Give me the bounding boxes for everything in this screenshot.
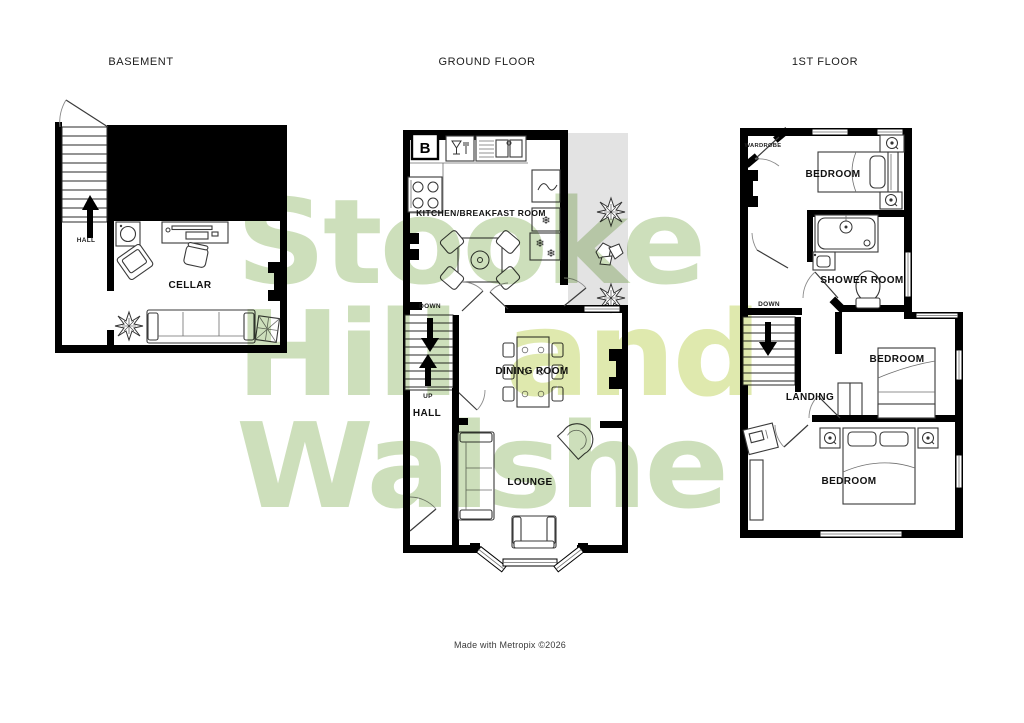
tub-chair-icon xyxy=(557,417,599,459)
dining-room-label: DINING ROOM xyxy=(495,366,568,377)
svg-text:❄: ❄ xyxy=(535,237,544,250)
boiler-label: B xyxy=(420,140,431,157)
washing-machine-icon xyxy=(116,222,140,246)
wall xyxy=(107,330,114,347)
basement-floorplan: HALL CELLAR xyxy=(55,95,290,360)
kitchen-dining-doors xyxy=(462,282,508,311)
boiler-unit: B xyxy=(412,134,438,159)
wall xyxy=(107,221,114,291)
wall xyxy=(505,305,560,313)
void-area xyxy=(107,125,287,221)
bedroom1-door-arc xyxy=(752,233,788,268)
floorplan-canvas: BASEMENT GROUND FLOOR 1ST FLOOR xyxy=(0,0,1024,723)
staircase-down xyxy=(743,317,801,392)
window xyxy=(877,129,903,135)
desk-computer-icon xyxy=(162,222,228,243)
bedroom3-label: BEDROOM xyxy=(821,476,876,487)
window xyxy=(820,531,902,537)
bedroom3-door-arc xyxy=(775,425,808,447)
window xyxy=(812,129,848,135)
wall xyxy=(452,418,468,425)
first-floor-title: 1ST FLOOR xyxy=(792,56,858,68)
wall xyxy=(600,421,622,428)
wardrobe-icon xyxy=(750,460,763,520)
chimney-breast xyxy=(268,262,280,301)
sink-unit-icon xyxy=(476,136,526,161)
plant-icon xyxy=(597,198,625,226)
wall xyxy=(740,308,802,315)
dressing-table-icon xyxy=(743,423,778,455)
outdoor-area xyxy=(568,133,628,313)
dishwasher-icon xyxy=(446,136,474,161)
up-label: UP xyxy=(423,393,433,400)
bedroom2-label: BEDROOM xyxy=(869,354,924,365)
wall xyxy=(55,345,287,353)
kitchen-label: KITCHEN/BREAKFAST ROOM xyxy=(416,208,546,218)
sofa-icon xyxy=(458,432,494,520)
down-label: DOWN xyxy=(758,301,780,308)
down-label: DOWN xyxy=(419,303,441,310)
wall xyxy=(403,545,475,553)
chimney-breast xyxy=(410,233,419,260)
armchair-icon xyxy=(116,243,154,280)
office-chair-icon xyxy=(183,242,209,268)
window xyxy=(956,350,962,380)
basement-title: BASEMENT xyxy=(108,56,173,68)
metropix-credit: Made with Metropix ©2026 xyxy=(454,640,566,650)
bedside-table-icon xyxy=(880,192,902,209)
lounge-label: LOUNGE xyxy=(507,477,552,488)
front-door-arc xyxy=(410,497,436,531)
freezer-icon: ❄ ❄ xyxy=(530,233,560,260)
window xyxy=(956,455,962,488)
window xyxy=(916,313,958,318)
cupboard-icon xyxy=(838,383,862,420)
ground-floor-title: GROUND FLOOR xyxy=(438,56,535,68)
tumble-dryer-icon xyxy=(532,170,560,202)
wall xyxy=(55,122,62,353)
first-floorplan: WARDROBE BEDROOM SHOWER ROOM DOWN LANDIN… xyxy=(735,120,967,542)
hall-label: HALL xyxy=(77,237,96,244)
window xyxy=(905,252,911,297)
hall-door-arc xyxy=(456,390,485,410)
shower-icon xyxy=(815,215,878,252)
wall xyxy=(955,312,963,538)
chimney-breast xyxy=(609,349,622,389)
shower-room-label: SHOWER ROOM xyxy=(820,275,903,286)
chimney-breast xyxy=(748,170,758,207)
hob-icon xyxy=(408,177,442,212)
armchair-icon xyxy=(512,516,556,548)
plant-icon xyxy=(115,312,143,340)
wardrobe-label: WARDROBE xyxy=(745,143,782,149)
double-bed-icon xyxy=(843,428,915,504)
wall xyxy=(807,210,813,262)
wall xyxy=(622,310,628,553)
entry-door-arc xyxy=(60,100,108,127)
breakfast-table-icon xyxy=(439,229,521,290)
cellar-label: CELLAR xyxy=(169,280,212,291)
landing-label: LANDING xyxy=(786,392,834,403)
window xyxy=(584,306,620,312)
basket-icon xyxy=(255,316,279,343)
ground-floorplan: B xyxy=(400,125,635,557)
wall xyxy=(560,130,568,285)
bedside-table-icon xyxy=(820,428,840,448)
bedroom1-label: BEDROOM xyxy=(805,169,860,180)
sofa-icon xyxy=(147,310,255,343)
basin-icon xyxy=(813,252,835,270)
bedside-table-icon xyxy=(880,135,904,152)
wall xyxy=(835,312,842,354)
bedside-table-icon xyxy=(918,428,938,448)
hall-label: HALL xyxy=(413,408,441,419)
svg-text:❄: ❄ xyxy=(546,247,555,260)
